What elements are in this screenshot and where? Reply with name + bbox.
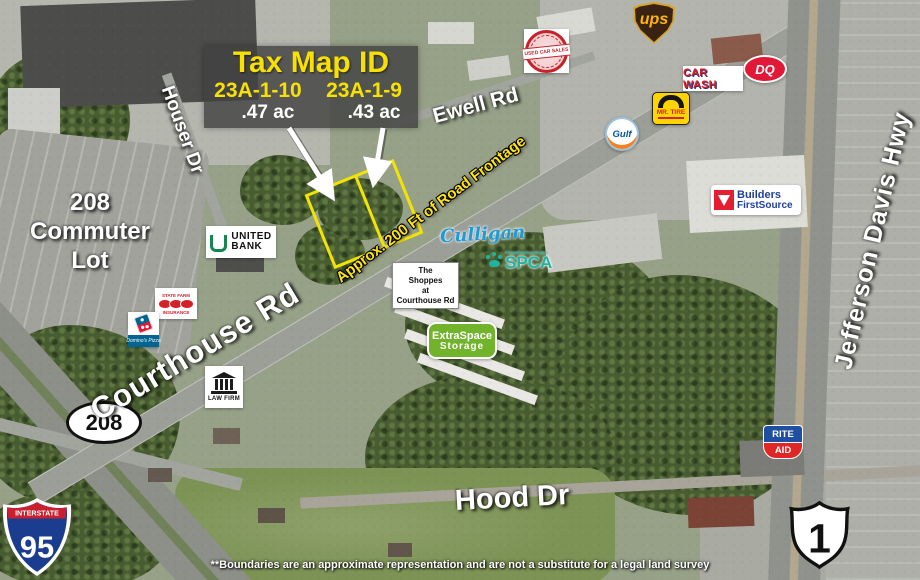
rite-aid-line1: RITE — [763, 425, 803, 442]
interstate-word: INTERSTATE — [15, 509, 59, 517]
area-label-commuter-lot: 208 Commuter Lot — [10, 188, 170, 275]
parcel-2-info: 23A-1-9 .43 ac — [315, 79, 413, 123]
gulf-logo: Gulf — [605, 117, 639, 151]
builders-label-line1: Builders — [737, 190, 793, 201]
spca-label: SPCA — [505, 255, 552, 270]
shoppes-line4: Courthouse Rd — [397, 296, 455, 306]
car-wash-logo: CAR WASH — [683, 66, 743, 91]
mr-tire-logo: MR. TIRE — [652, 92, 690, 125]
us-route-1-number: 1 — [808, 516, 831, 562]
state-farm-label: STATE FARM — [162, 293, 190, 298]
state-farm-logo: STATE FARM INSURANCE — [155, 288, 197, 319]
dq-label: DQ — [755, 62, 775, 77]
house — [148, 468, 172, 482]
gulf-label: Gulf — [613, 129, 632, 140]
parcel-2-id: 23A-1-9 — [315, 79, 413, 102]
mr-tire-label: MR. TIRE — [657, 109, 686, 116]
shoppes-at-courthouse-label-box: The Shoppes at Courthouse Rd — [392, 262, 459, 309]
paw-icon — [486, 252, 503, 268]
house — [213, 428, 240, 444]
commuter-lot-line-1: 208 — [10, 188, 170, 217]
parcel-1-id: 23A-1-10 — [209, 79, 307, 102]
road-label-ewell-rd: Ewell Rd — [430, 83, 521, 129]
building — [467, 55, 511, 81]
extraspace-storage-logo: ExtraSpace Storage — [427, 322, 497, 359]
rite-aid-logo: RITE AID — [763, 425, 803, 460]
building — [428, 22, 474, 44]
builders-mark-icon — [714, 190, 734, 210]
united-bank-u-icon — [210, 235, 227, 252]
domino-tile-icon — [134, 313, 154, 334]
house — [388, 543, 412, 557]
used-car-sales-logo: USED CAR SALES — [524, 29, 569, 73]
spca-logo: FREDERICKSBURG SPCA — [486, 250, 552, 270]
law-firm-label: LAW FIRM — [208, 396, 240, 402]
aerial-site-map: Tax Map ID 23A-1-10 .47 ac 23A-1-9 .43 a… — [0, 0, 920, 580]
building — [687, 496, 754, 528]
parcel-1-info: 23A-1-10 .47 ac — [209, 79, 307, 123]
shoppes-line2: Shoppes — [409, 276, 443, 286]
ups-logo: ups — [633, 2, 675, 44]
building — [543, 213, 663, 273]
culligan-logo: Culligan — [440, 222, 526, 247]
tax-map-id-callout: Tax Map ID 23A-1-10 .47 ac 23A-1-9 .43 a… — [204, 46, 418, 128]
courthouse-icon — [212, 372, 236, 378]
state-farm-insurance-label: INSURANCE — [163, 310, 190, 315]
commuter-lot-line-3: Lot — [10, 246, 170, 275]
builders-label-line2: FirstSource — [737, 201, 793, 211]
ups-label: ups — [633, 11, 675, 29]
tax-map-id-title: Tax Map ID — [204, 46, 418, 79]
road-label-hood-dr: Hood Dr — [454, 479, 570, 518]
extraspace-line2: Storage — [440, 342, 484, 352]
car-wash-label: CAR WASH — [683, 67, 743, 91]
dairy-queen-logo: DQ — [743, 55, 787, 83]
dominos-label: Domino's Pizza — [128, 335, 159, 347]
builders-firstsource-logo: Builders FirstSource — [711, 185, 801, 215]
shoppes-line3: at — [422, 286, 429, 296]
parcel-1-area: .47 ac — [209, 102, 307, 123]
shoppes-line1: The — [418, 266, 432, 276]
united-bank-logo: UNITED BANK — [206, 226, 276, 258]
used-car-sales-label: USED CAR SALES — [523, 43, 571, 60]
tire-icon — [658, 95, 684, 108]
boundary-disclaimer: **Boundaries are an approximate represen… — [0, 559, 920, 571]
house — [258, 508, 285, 523]
dominos-pizza-logo: Domino's Pizza — [128, 312, 159, 347]
mr-tire-tagline-strip — [658, 117, 684, 119]
rite-aid-line2: AID — [763, 442, 803, 459]
commuter-lot-line-2: Commuter — [10, 217, 170, 246]
state-farm-trioval-icon — [160, 299, 193, 309]
extraspace-line1: ExtraSpace — [432, 330, 492, 342]
parcel-2-area: .43 ac — [315, 102, 413, 123]
law-firm-logo: LAW FIRM — [205, 366, 243, 408]
stamp-circle-icon: USED CAR SALES — [525, 30, 568, 73]
united-bank-line2: BANK — [231, 242, 271, 252]
